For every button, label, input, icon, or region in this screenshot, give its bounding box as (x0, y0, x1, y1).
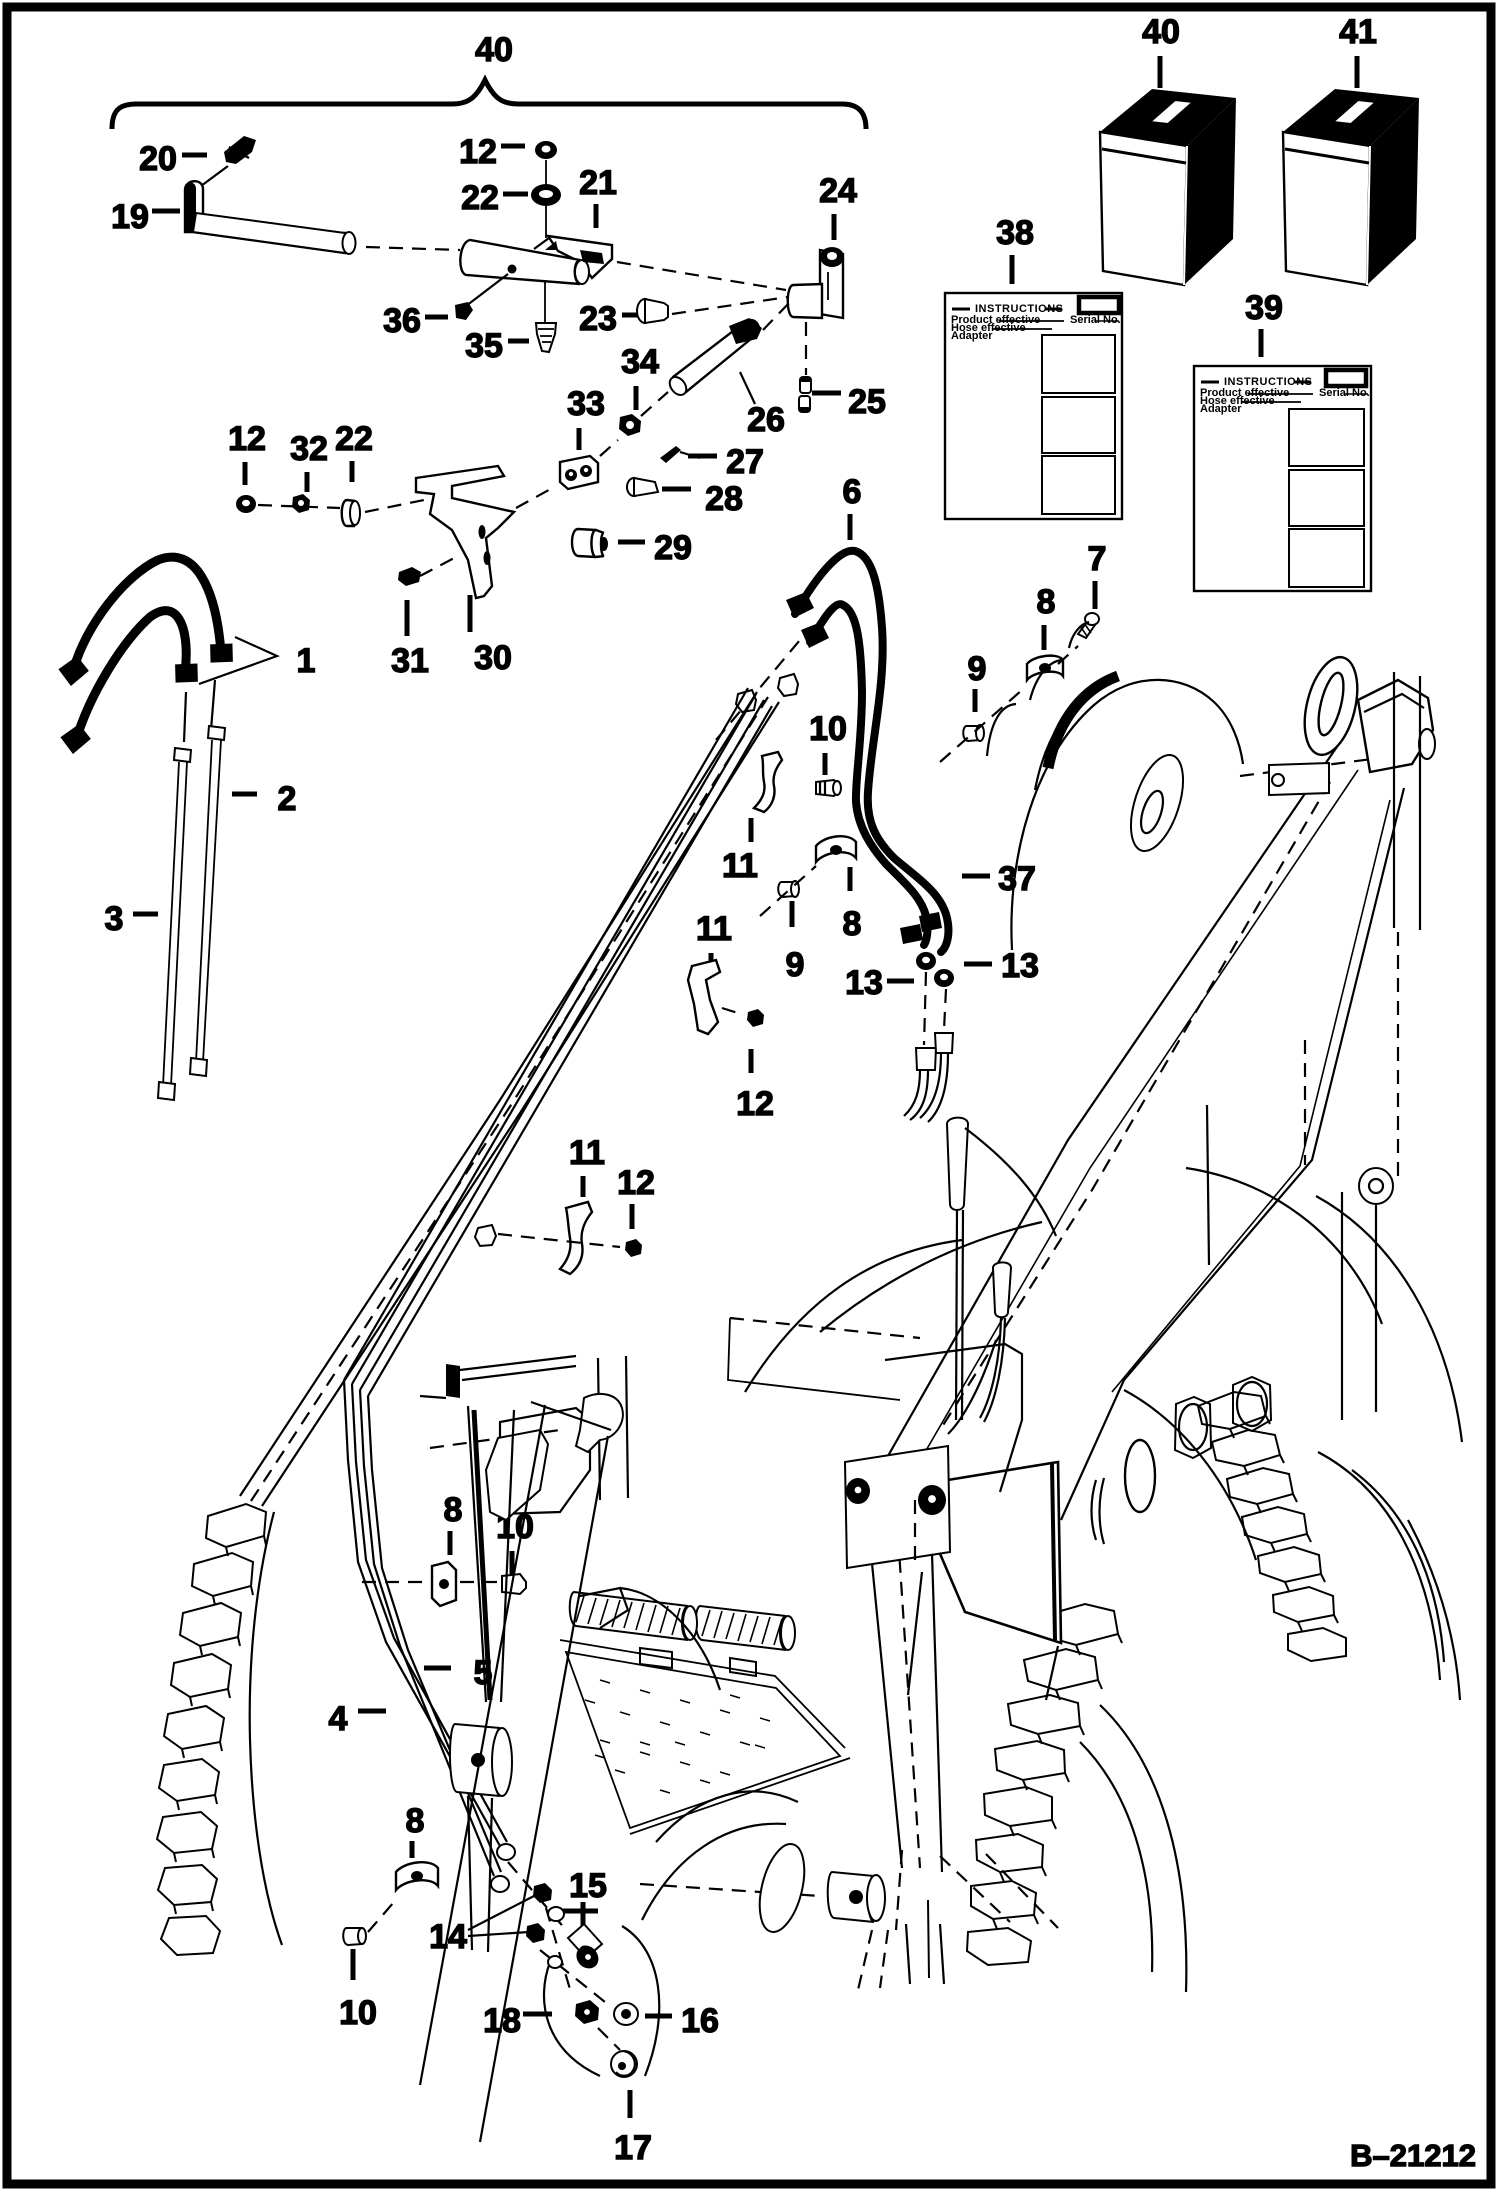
svg-text:26: 26 (747, 401, 785, 439)
svg-text:41: 41 (1339, 13, 1377, 51)
svg-text:Serial No.: Serial No. (1070, 314, 1121, 326)
svg-text:24: 24 (819, 172, 857, 210)
svg-text:8: 8 (843, 905, 862, 943)
svg-text:B–21212: B–21212 (1350, 2138, 1476, 2173)
svg-text:19: 19 (111, 198, 149, 236)
svg-text:17: 17 (614, 2129, 652, 2167)
svg-text:4: 4 (329, 1700, 348, 1738)
svg-text:Adapter: Adapter (951, 330, 993, 342)
svg-text:40: 40 (475, 31, 513, 69)
svg-text:32: 32 (290, 430, 328, 468)
svg-text:12: 12 (736, 1085, 774, 1123)
svg-text:35: 35 (465, 327, 503, 365)
svg-text:10: 10 (809, 710, 847, 748)
svg-text:Adapter: Adapter (1200, 403, 1242, 415)
svg-text:11: 11 (696, 910, 732, 948)
svg-text:22: 22 (461, 179, 499, 217)
svg-text:12: 12 (617, 1164, 655, 1202)
svg-text:31: 31 (391, 642, 429, 680)
svg-text:22: 22 (335, 420, 373, 458)
svg-text:Serial No.: Serial No. (1319, 387, 1370, 399)
svg-text:10: 10 (339, 1994, 377, 2032)
svg-text:34: 34 (621, 343, 659, 381)
svg-text:12: 12 (228, 420, 266, 458)
svg-text:3: 3 (105, 900, 124, 938)
svg-text:21: 21 (579, 164, 617, 202)
svg-text:15: 15 (569, 1867, 607, 1905)
svg-text:36: 36 (383, 302, 421, 340)
svg-text:11: 11 (569, 1134, 605, 1172)
svg-text:28: 28 (705, 480, 743, 518)
svg-text:38: 38 (996, 214, 1034, 252)
svg-text:40: 40 (1142, 13, 1180, 51)
svg-text:25: 25 (848, 383, 886, 421)
svg-text:2: 2 (278, 780, 297, 818)
svg-text:30: 30 (474, 639, 512, 677)
svg-text:33: 33 (567, 385, 605, 423)
svg-text:6: 6 (843, 473, 862, 511)
svg-text:16: 16 (681, 2002, 719, 2040)
svg-text:20: 20 (139, 140, 177, 178)
svg-text:11: 11 (722, 847, 758, 885)
svg-text:23: 23 (579, 300, 617, 338)
svg-text:9: 9 (786, 946, 805, 984)
svg-text:8: 8 (406, 1802, 425, 1840)
svg-text:13: 13 (845, 964, 883, 1002)
svg-text:12: 12 (459, 133, 497, 171)
svg-text:29: 29 (654, 529, 692, 567)
svg-text:1: 1 (297, 642, 316, 680)
svg-text:8: 8 (1037, 583, 1056, 621)
svg-text:27: 27 (726, 443, 764, 481)
svg-text:39: 39 (1245, 289, 1283, 327)
svg-text:13: 13 (1001, 947, 1039, 985)
svg-text:8: 8 (444, 1491, 463, 1529)
svg-text:7: 7 (1088, 540, 1107, 578)
svg-text:9: 9 (968, 650, 987, 688)
